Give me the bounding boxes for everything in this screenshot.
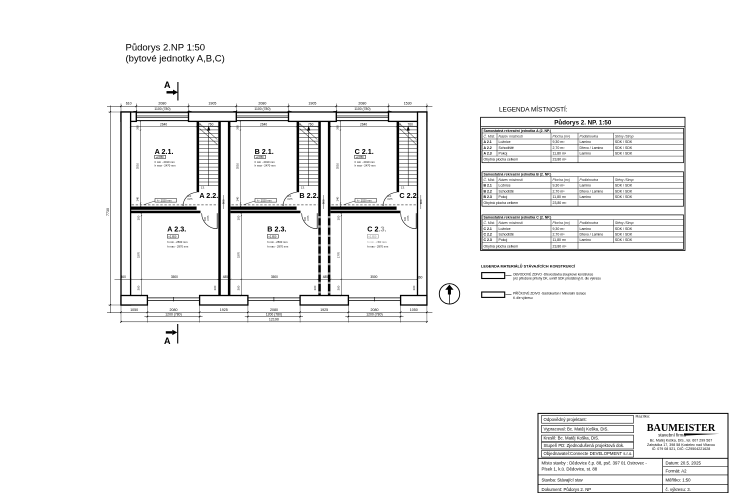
svg-text:Pokoj: Pokoj [499,152,508,156]
svg-text:Ložnice: Ložnice [499,184,511,188]
svg-text:100: 100 [136,215,140,220]
svg-text:23,80 m²: 23,80 m² [553,244,568,248]
svg-text:h min - 2010 mm: h min - 2010 mm [155,160,176,164]
svg-text:Samostatná rekreační jednotka: Samostatná rekreační jednotka A (2. NP.) [484,129,552,133]
svg-text:9,30 m²: 9,30 m² [553,227,566,231]
svg-text:Objednavatel:Connecte DEVELOPM: Objednavatel:Connecte DEVELOPMENT s.r.o. [544,451,633,456]
svg-text:A 2.3.: A 2.3. [167,225,186,234]
svg-text:Ložnice: Ložnice [499,227,511,231]
svg-text:3500: 3500 [171,275,178,279]
svg-text:Formát: A2: Formát: A2 [666,469,688,474]
svg-text:1100 (780): 1100 (780) [254,107,270,111]
svg-text:Písek 1, k.ú. Dědovice, st. 8: Písek 1, k.ú. Dědovice, st. 88 [542,466,598,471]
svg-text:360: 360 [236,125,240,130]
svg-text:SDK / SDK: SDK / SDK [615,227,633,231]
svg-text:Stupeň PD: Zjednodušená projek: Stupeň PD: Zjednodušená projektová dok. [544,443,625,448]
svg-text:3510: 3510 [136,162,140,169]
svg-text:SDK / SDK: SDK / SDK [615,233,633,237]
svg-text:Datum: 20.5. 2025: Datum: 20.5. 2025 [666,460,702,465]
svg-text:1925: 1925 [320,308,328,312]
svg-text:Název místnosti: Název místnosti [499,134,523,138]
svg-text:Podlahovina: Podlahovina [580,178,599,182]
svg-text:3370: 3370 [136,251,140,258]
svg-text:360: 360 [336,285,340,290]
svg-text:1925: 1925 [220,308,228,312]
svg-text:1200 (780): 1200 (780) [366,312,382,316]
svg-text:A 2.2.: A 2.2. [199,191,218,200]
svg-text:(bytové jednotky A,B,C): (bytové jednotky A,B,C) [126,54,225,65]
svg-text:610: 610 [126,102,132,106]
svg-text:B 2.2: B 2.2 [484,189,492,193]
svg-text:SDK / SDK: SDK / SDK [615,195,633,199]
svg-text:12190: 12190 [269,317,279,321]
svg-text:2080: 2080 [371,308,379,312]
svg-text:7730: 7730 [106,208,110,216]
svg-text:C 2.1.: C 2.1. [355,147,374,156]
svg-text:Půdorys 2.NP 1:50: Půdorys 2.NP 1:50 [126,43,206,54]
svg-text:C 2.2: C 2.2 [484,233,492,237]
svg-text:B 2.3.: B 2.3. [267,225,286,234]
svg-text:100: 100 [336,215,340,220]
svg-text:1050: 1050 [410,308,418,312]
svg-text:2080: 2080 [170,308,178,312]
svg-text:2,70 m²: 2,70 m² [553,189,566,193]
svg-text:360: 360 [412,285,416,290]
svg-text:760: 760 [208,122,214,126]
svg-text:360: 360 [121,275,127,279]
svg-text:2080: 2080 [158,102,166,106]
svg-text:2640: 2640 [160,122,167,126]
svg-text:1100 (780): 1100 (780) [354,107,370,111]
svg-text:1530: 1530 [404,102,412,106]
svg-text:360: 360 [213,285,217,290]
svg-text:Stěny /Strop: Stěny /Strop [615,178,634,182]
svg-text:1975: 1975 [207,215,210,221]
svg-text:1905: 1905 [208,102,216,106]
svg-text:OBVODOVÉ ZDIVO -Dřevostavba sl: OBVODOVÉ ZDIVO -Dřevostavba sloupkové ko… [513,271,593,276]
svg-text:+2,850: +2,850 [256,155,265,159]
svg-text:Vypracoval: Bc. Matěj Koška, D: Vypracoval: Bc. Matěj Koška, DiS. [544,427,609,432]
svg-text:1975: 1975 [387,198,393,201]
svg-text:100: 100 [236,215,240,220]
svg-text:Plocha (m²): Plocha (m²) [553,221,571,225]
svg-text:9,30 m²: 9,30 m² [553,184,566,188]
svg-text:Obytná plocha celkem: Obytná plocha celkem [484,201,519,205]
svg-text:Pokoj: Pokoj [499,238,508,242]
svg-text:Lamino: Lamino [580,152,592,156]
svg-text:360: 360 [417,276,423,280]
svg-text:h - 2520 mm: h - 2520 mm [357,198,372,202]
svg-text:1200 (780): 1200 (780) [165,312,181,316]
svg-text:2,70 m²: 2,70 m² [553,146,566,150]
svg-text:360: 360 [336,125,340,130]
svg-text:Podlahovina: Podlahovina [580,221,599,225]
svg-text:2640: 2640 [360,122,367,126]
svg-text:3370: 3370 [236,251,240,258]
svg-text:2080: 2080 [358,102,366,106]
svg-text:IČ: 079 08 521, DIČ: CZ9504221: IČ: 079 08 521, DIČ: CZ9504221628 [652,446,711,451]
svg-text:1975: 1975 [287,198,293,201]
svg-text:Název místnosti: Název místnosti [499,178,523,182]
svg-text:Lamino: Lamino [580,238,592,242]
svg-text:.3.: .3. [379,225,387,234]
svg-text:Měřítko: 1:50: Měřítko: 1:50 [666,478,692,483]
svg-text:A 2.3: A 2.3 [484,152,492,156]
svg-text:13.: 13. [401,185,405,189]
svg-text:Lamino: Lamino [580,140,592,144]
svg-text:360: 360 [136,125,140,130]
svg-text:h min - 2010 mm: h min - 2010 mm [255,160,276,164]
svg-text:Místo stavby : Dědovice č.p. 8: Místo stavby : Dědovice č.p. 88, psč. 39… [542,460,648,465]
svg-text:00 mm: 00 mm [378,240,387,244]
svg-text:h max - 2970 mm: h max - 2970 mm [267,244,289,248]
svg-text:+2,850: +2,850 [356,155,365,159]
svg-text:Dřevo / Lamino: Dřevo / Lamino [580,146,604,150]
svg-text:Obytná plocha celkem: Obytná plocha celkem [484,158,519,162]
svg-text:C 2.2.: C 2.2. [399,191,418,200]
svg-text:2640: 2640 [260,122,267,126]
svg-text:SDK / SDK: SDK / SDK [615,189,633,193]
svg-text:Schodiště: Schodiště [499,146,514,150]
svg-text:A: A [164,336,171,346]
svg-text:Lamino: Lamino [580,227,592,231]
svg-text:485: 485 [223,275,229,279]
svg-text:760: 760 [308,122,314,126]
svg-text:A 2.1.: A 2.1. [155,147,174,156]
svg-text:h min - 2010 mm: h min - 2010 mm [355,160,376,164]
svg-text:140: 140 [136,196,140,201]
svg-text:2080: 2080 [258,102,266,106]
svg-text:Stěny /Strop: Stěny /Strop [615,221,634,225]
svg-text:B 2.1.: B 2.1. [255,147,274,156]
svg-text:B 2.2.: B 2.2. [299,191,318,200]
svg-text:1770: 1770 [336,251,340,258]
svg-text:360: 360 [313,285,317,290]
svg-text:3500: 3500 [370,275,377,279]
svg-text:stavební firma: stavební firma [658,433,686,438]
svg-text:140: 140 [236,196,240,201]
svg-text:Lamino: Lamino [580,184,592,188]
svg-text:Půdorys 2. NP. 1:50: Půdorys 2. NP. 1:50 [554,120,612,127]
svg-text:1050: 1050 [130,308,138,312]
svg-text:C 2.3: C 2.3 [484,238,492,242]
svg-text:1905: 1905 [308,102,316,106]
svg-text:h max - 2970 mm: h max - 2970 mm [167,244,189,248]
svg-text:C 2: C 2 [367,225,378,234]
svg-text:h max - 2970 mm: h max - 2970 mm [367,244,389,248]
svg-text:č. výkresu: 3.: č. výkresu: 3. [666,487,691,492]
svg-text:900: 900 [419,199,423,204]
svg-text:Samostatná rekreační jednotka: Samostatná rekreační jednotka B (2. NP.) [484,173,552,177]
svg-text:+2,850: +2,850 [156,155,165,159]
svg-text:Č. Míst.: Č. Míst. [484,133,496,138]
svg-text:h min - 2500 mm: h min - 2500 mm [167,240,188,244]
svg-text:A 2.1: A 2.1 [484,140,492,144]
svg-text:Kreslil: Bc. Matěj Koška, DiS.: Kreslil: Bc. Matěj Koška, DiS. [544,436,600,441]
svg-text:Obytná plocha celkem: Obytná plocha celkem [484,244,519,248]
svg-text:Dřevo / Lamino: Dřevo / Lamino [580,233,604,237]
svg-text:h min - 2500 mm: h min - 2500 mm [267,240,288,244]
svg-text:1200 (780): 1200 (780) [266,312,282,316]
svg-text:2,70 m²: 2,70 m² [553,233,566,237]
svg-text:tl. dle výkresu: tl. dle výkresu [513,296,533,300]
svg-text:Schodiště: Schodiště [499,233,514,237]
svg-text:11,80 m²: 11,80 m² [553,238,567,242]
svg-text:3510: 3510 [236,162,240,169]
svg-text:Název místnosti: Název místnosti [499,221,523,225]
svg-text:SDK / SDK: SDK / SDK [615,184,633,188]
svg-text:Č. Míst.: Č. Míst. [484,177,496,182]
svg-text:h - 2520 mm: h - 2520 mm [157,198,172,202]
svg-text:h max - 2470 mm: h max - 2470 mm [155,163,177,167]
svg-text:Samostatná rekreační jednotka: Samostatná rekreační jednotka C (2. NP.) [484,216,552,220]
svg-text:360: 360 [136,285,140,290]
svg-text:C 2.1: C 2.1 [484,227,492,231]
svg-text:LEGENDA MÍSTNOSTÍ:: LEGENDA MÍSTNOSTÍ: [499,105,568,114]
svg-text:2080: 2080 [270,308,278,312]
svg-text:485: 485 [323,275,329,279]
svg-text:Pokoj: Pokoj [499,195,508,199]
svg-text:h max - 2470 mm: h max - 2470 mm [355,163,377,167]
svg-text:3510: 3510 [336,162,340,169]
svg-text:Schodiště: Schodiště [499,189,514,193]
svg-text:SDK / SDK: SDK / SDK [615,140,633,144]
svg-text:+2,850: +2,850 [268,235,277,239]
svg-text:h - 2520 mm: h - 2520 mm [257,198,272,202]
svg-text:Podlahovina: Podlahovina [580,134,599,138]
svg-text:760: 760 [408,122,414,126]
svg-text:140: 140 [336,196,340,201]
svg-text:SDK / SDK: SDK / SDK [615,146,633,150]
svg-text:100: 100 [197,122,202,126]
svg-text:Dřevo / Lamino: Dřevo / Lamino [580,189,604,193]
svg-text:A: A [164,80,171,90]
svg-text:Č. Míst.: Č. Míst. [484,220,496,225]
svg-text:23,80 m²: 23,80 m² [553,201,568,205]
svg-text:SDK / SDK: SDK / SDK [615,152,633,156]
svg-text:3500: 3500 [271,275,278,279]
svg-text:100: 100 [397,122,402,126]
svg-text:9,30 m²: 9,30 m² [553,140,566,144]
svg-text:900: 900 [321,199,325,204]
svg-text:1975: 1975 [307,215,310,221]
svg-text:PŘÍČKOVÉ ZDIVO -Sádrokarton /: PŘÍČKOVÉ ZDIVO -Sádrokarton / Minerální … [513,291,586,296]
svg-text:13.: 13. [301,185,305,189]
svg-text:LEGENDA MATERIÁLŮ STÁVAJÍCÍCH: LEGENDA MATERIÁLŮ STÁVAJÍCÍCH KONSTRUKCÍ [481,263,576,268]
svg-text:23,80 m²: 23,80 m² [553,158,568,162]
svg-text:Plocha (m²): Plocha (m²) [553,134,571,138]
svg-text:11,80 m²: 11,80 m² [553,195,567,199]
svg-text:360: 360 [236,285,240,290]
svg-text:1975: 1975 [407,215,410,221]
svg-text:B 2.1: B 2.1 [484,184,492,188]
svg-text:100: 100 [297,122,302,126]
svg-text:Razítko:: Razítko: [636,414,651,419]
svg-text:+2,850: +2,850 [168,235,177,239]
svg-text:+2,850: +2,850 [368,235,377,239]
svg-text:A 2.2: A 2.2 [484,146,492,150]
svg-text:Stěny /Strop: Stěny /Strop [615,134,634,138]
svg-text:Stavba: Stávající stav: Stavba: Stávající stav [542,478,584,483]
svg-text:Lamino: Lamino [580,195,592,199]
svg-text:1975: 1975 [187,198,193,201]
svg-text:Dokument: Půdorys 2. NP: Dokument: Půdorys 2. NP [542,487,592,492]
svg-text:11,80 m²: 11,80 m² [553,152,567,156]
svg-text:Plocha (m²): Plocha (m²) [553,178,571,182]
svg-text:1100 (780): 1100 (780) [154,107,170,111]
svg-text:SDK / SDK: SDK / SDK [615,238,633,242]
svg-text:13.: 13. [201,185,205,189]
svg-text:Odpovědný projektant:: Odpovědný projektant: [544,417,587,422]
svg-text:h max - 2470 mm: h max - 2470 mm [255,163,277,167]
svg-text:900: 900 [221,199,225,204]
svg-text:B 2.3: B 2.3 [484,195,492,199]
svg-text:Ložnice: Ložnice [499,140,511,144]
svg-text:(viz přiložené přílohy DK, uvn: (viz přiložené přílohy DK, uvnitř SDK př… [513,277,601,281]
